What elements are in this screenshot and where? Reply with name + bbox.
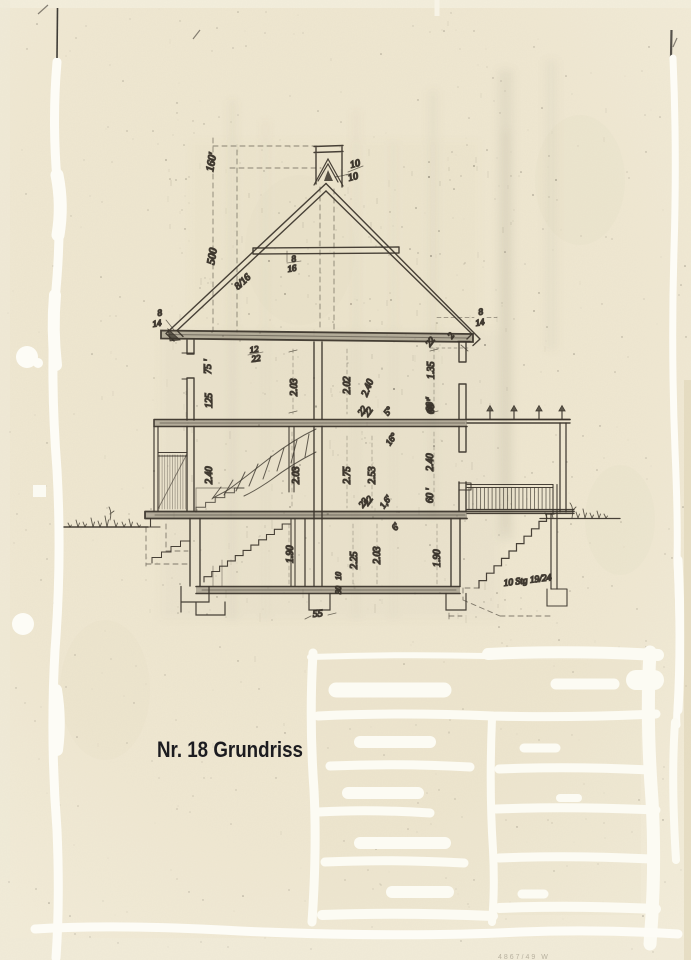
svg-text:60 ': 60 ' <box>426 399 437 415</box>
svg-text:1.90: 1.90 <box>432 550 443 568</box>
svg-text:2.03: 2.03 <box>372 547 383 565</box>
svg-text:10: 10 <box>334 572 343 580</box>
svg-text:1.90: 1.90 <box>285 546 296 564</box>
svg-text:2.40: 2.40 <box>425 454 436 472</box>
svg-text:55: 55 <box>312 608 323 620</box>
svg-text:2.03: 2.03 <box>291 467 302 485</box>
svg-text:2.40: 2.40 <box>204 467 215 485</box>
svg-text:60 ': 60 ' <box>425 488 436 504</box>
svg-text:75 ': 75 ' <box>203 359 214 375</box>
svg-text:2.25: 2.25 <box>349 552 360 570</box>
svg-text:30: 30 <box>334 586 343 595</box>
svg-text:2.75: 2.75 <box>342 467 353 485</box>
svg-text:1.35: 1.35 <box>426 362 437 380</box>
svg-text:2.53: 2.53 <box>367 467 378 485</box>
svg-text:Nr. 18 Grundriss: Nr. 18 Grundriss <box>157 737 303 762</box>
svg-text:2.02: 2.02 <box>342 377 353 395</box>
svg-text:2.03: 2.03 <box>289 379 300 397</box>
svg-text:125: 125 <box>204 393 215 408</box>
svg-text:4867/49 W: 4867/49 W <box>498 954 550 960</box>
